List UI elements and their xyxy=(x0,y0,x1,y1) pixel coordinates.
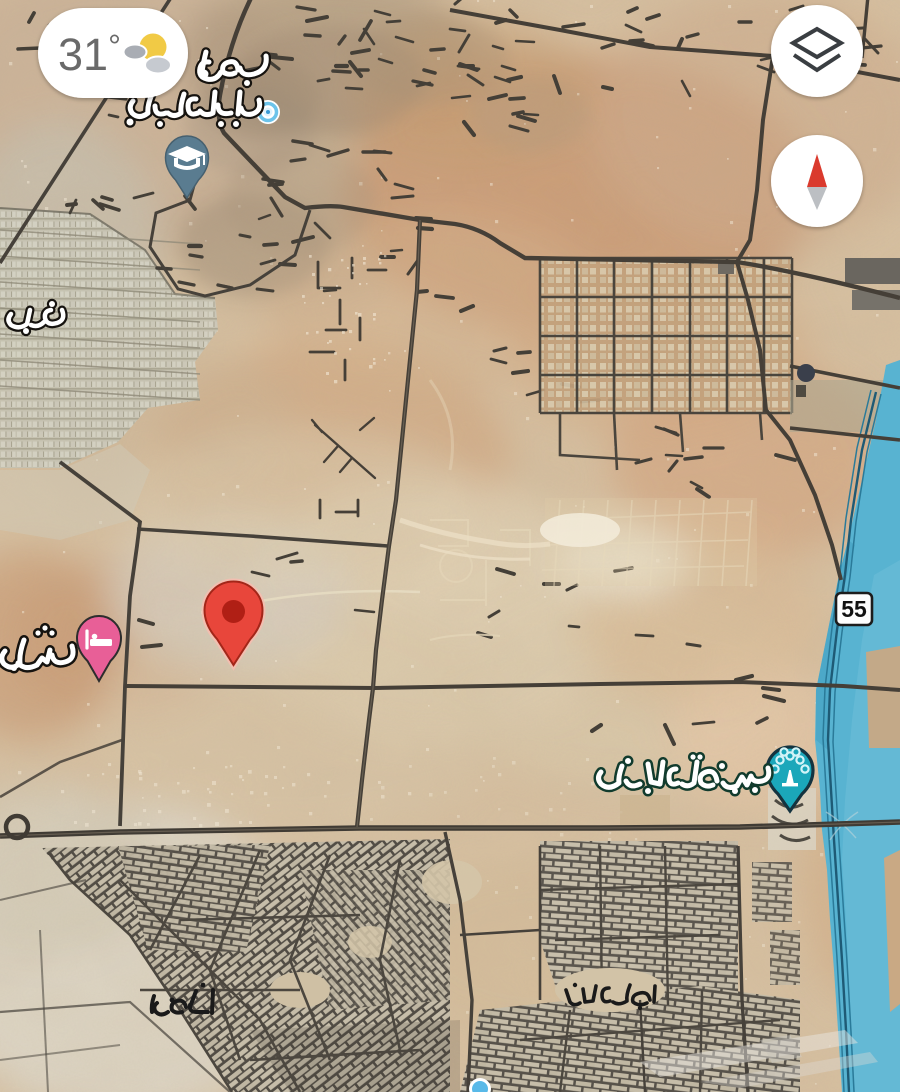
svg-text:55: 55 xyxy=(841,596,867,622)
